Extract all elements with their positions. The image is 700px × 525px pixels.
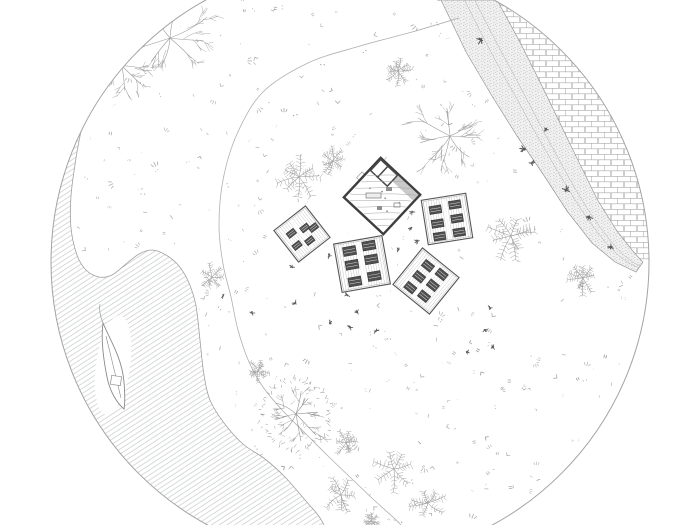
tree-branch (114, 45, 118, 48)
skylight-glass (364, 254, 378, 265)
tree-branch (138, 41, 143, 47)
site-content (0, 0, 650, 525)
tree-branch (114, 45, 116, 47)
tree-branch (117, 46, 119, 52)
tree-branch (95, 67, 99, 69)
tree-branch (106, 45, 109, 52)
tree-branch (139, 5, 148, 11)
tree-branch (129, 47, 136, 49)
tree-branch (92, 66, 96, 69)
skylight-glass (362, 240, 376, 251)
tree-branch (174, 6, 176, 11)
skylight-panel (364, 254, 378, 265)
tree-branch (172, 0, 174, 19)
boat-cabin (110, 375, 121, 385)
clump-stroke (566, 186, 567, 192)
tree-branch (111, 77, 112, 81)
skylight-glass (450, 214, 463, 224)
tree-branch (95, 67, 104, 79)
skylight-glass (431, 219, 444, 229)
skylight-glass (342, 245, 356, 256)
tree-branch (138, 0, 142, 7)
tree-branch (132, 50, 134, 54)
skylight-panel (429, 205, 442, 215)
tree-branch (116, 46, 121, 57)
tree-branch (92, 50, 98, 54)
tree-branch (115, 45, 121, 51)
furniture (377, 206, 382, 210)
tree-branch (103, 51, 122, 66)
floor-dot (384, 197, 386, 199)
tree-branch (93, 78, 96, 83)
tree-branch (94, 66, 104, 67)
tree-branch (135, 2, 143, 4)
skylight-panel (342, 245, 356, 256)
site-plan (0, 0, 700, 525)
floor-dot (369, 187, 371, 189)
tree-branch (99, 82, 108, 86)
tree-branch (102, 47, 107, 49)
site-plan-drawing (0, 0, 700, 525)
tree-branch (98, 67, 108, 69)
tree-branch (116, 45, 118, 48)
tree-branch (90, 76, 98, 78)
tree-branch (107, 77, 112, 78)
skylight-glass (348, 276, 362, 287)
tree-branch (95, 66, 122, 68)
tree-branch (125, 43, 128, 47)
skylight-panel (345, 259, 359, 270)
grass-mark (416, 79, 417, 80)
tree-branch (169, 0, 173, 5)
floor-dot (386, 210, 388, 212)
tree-branch (134, 0, 140, 1)
skylight-panel (433, 231, 446, 241)
building-cabin (334, 236, 391, 293)
skylight-glass (448, 200, 461, 210)
tree-branch (95, 54, 107, 55)
grass-mark (563, 259, 564, 260)
furniture (386, 187, 392, 191)
grass-mark (309, 44, 310, 45)
tree-branch (175, 4, 178, 18)
tree-branch (116, 47, 119, 51)
building-cabin (421, 193, 472, 244)
skylight-panel (367, 270, 381, 281)
skylight-panel (453, 227, 466, 237)
tree-branch (137, 3, 155, 16)
skylight-panel (362, 240, 376, 251)
skylight-glass (345, 259, 359, 270)
grass-mark (269, 102, 270, 103)
tree-branch (105, 44, 112, 57)
skylight-panel (448, 200, 461, 210)
skylight-glass (453, 227, 466, 237)
table (366, 193, 381, 198)
tree-branch (96, 85, 101, 88)
skylight-glass (429, 205, 442, 215)
tree-branch (137, 0, 142, 7)
skylight-panel (450, 214, 463, 224)
tree-branch (131, 53, 134, 56)
tree-branch (135, 0, 150, 8)
floor-dot (398, 202, 400, 204)
floor-dot (381, 191, 383, 193)
tree-branch (95, 54, 100, 55)
tree-branch (121, 46, 126, 54)
tree-branch (97, 68, 102, 71)
skylight-glass (433, 231, 446, 241)
tree-branch (169, 0, 173, 2)
skylight-glass (367, 270, 381, 281)
tree-branch (120, 46, 123, 66)
tree-branch (129, 44, 137, 47)
tree-branch (174, 0, 177, 6)
tree-branch (133, 48, 139, 49)
skylight-panel (431, 219, 444, 229)
skylight-panel (348, 276, 362, 287)
tree-branch (131, 50, 135, 53)
